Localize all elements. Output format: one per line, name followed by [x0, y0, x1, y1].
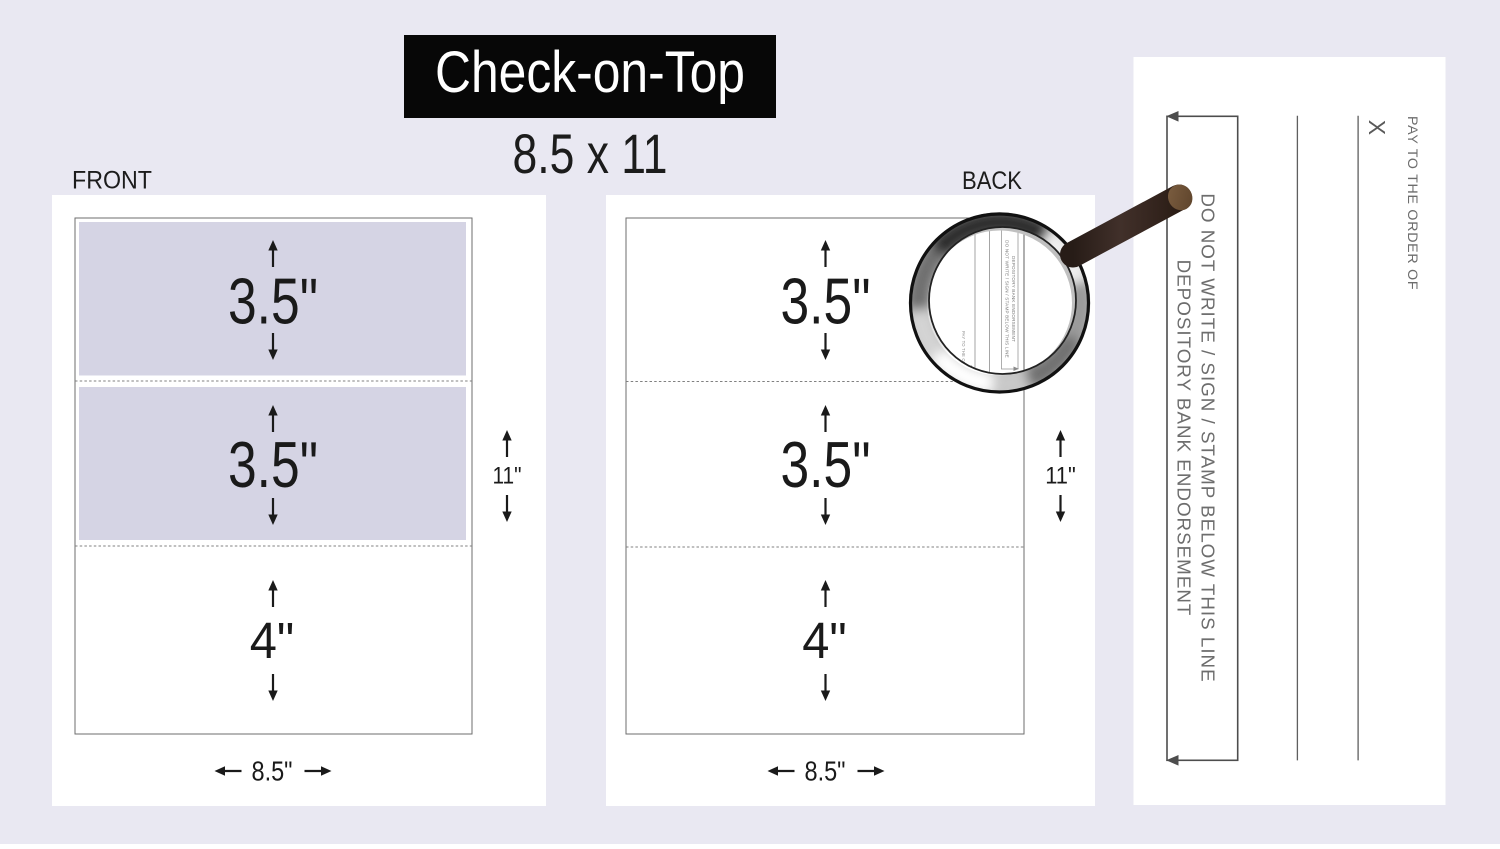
svg-text:11": 11" [493, 463, 522, 490]
svg-text:DO NOT WRITE / SIGN / STAMP BE: DO NOT WRITE / SIGN / STAMP BELOW THIS L… [1198, 193, 1219, 682]
svg-text:8.5 x 11: 8.5 x 11 [513, 122, 668, 185]
svg-text:X: X [1364, 120, 1390, 135]
svg-text:8.5": 8.5" [805, 756, 846, 787]
svg-text:4": 4" [250, 612, 295, 669]
svg-text:3.5": 3.5" [228, 428, 318, 501]
svg-text:DEPOSITORY BANK ENDORSEMENT: DEPOSITORY BANK ENDORSEMENT [1174, 260, 1195, 617]
svg-text:3.5": 3.5" [228, 265, 318, 338]
svg-text:4": 4" [802, 612, 847, 669]
svg-text:BACK: BACK [962, 167, 1022, 195]
svg-text:11": 11" [1045, 463, 1076, 490]
svg-text:Check-on-Top: Check-on-Top [435, 40, 745, 105]
svg-text:8.5": 8.5" [252, 756, 293, 787]
svg-text:DO NOT WRITE / SIGN / STAMP BE: DO NOT WRITE / SIGN / STAMP BELOW THIS L… [1004, 240, 1009, 358]
svg-text:DEPOSITORY BANK ENDORSEMENT: DEPOSITORY BANK ENDORSEMENT [1011, 256, 1016, 342]
svg-text:PAY TO THE ORDER OF: PAY TO THE ORDER OF [1404, 116, 1420, 290]
svg-text:3.5": 3.5" [781, 265, 871, 338]
svg-text:3.5": 3.5" [781, 428, 871, 501]
svg-text:FRONT: FRONT [72, 167, 152, 195]
